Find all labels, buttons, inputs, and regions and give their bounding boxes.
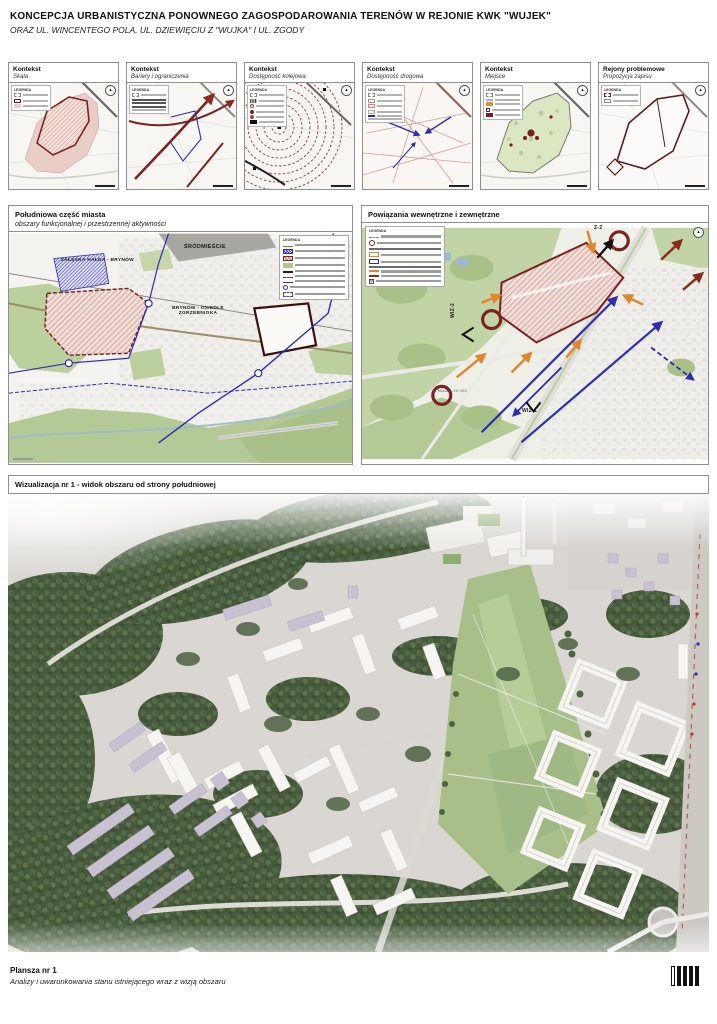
legend: LEGENDA [365,85,405,123]
card-map: LEGENDA ▴ [481,83,590,189]
panel-title: Południowa część miasta [15,210,346,219]
sheet-description: Analizy i uwarunkowania stanu istniejące… [10,977,707,986]
connections-map: LEGENDA M ▴ Z-2 WIZ-2 WIZ-1 skala 1:20 0… [362,223,708,464]
panel-header: Południowa część miasta obszary funkcjon… [9,206,352,232]
view-label-wiz1: WIZ-1 [522,408,537,414]
card-title: Kontekst [131,66,232,73]
legend-row [369,275,441,277]
legend-row [368,104,402,108]
card-header: Kontekst Dostępność kolejowa [245,63,354,83]
card-subtitle: Dostępność kolejowa [249,74,350,80]
scale-text: skala 1:20 000 [438,389,467,393]
legend-title: LEGENDA [132,88,166,92]
scale-text-skeleton [13,458,33,461]
context-card-miejsce: Kontekst Miejsce LEGENDA ▴ [480,62,591,190]
board-footer: Plansza nr 1 Analizy i uwarunkowania sta… [10,966,707,996]
district-label-srodmiescie: ŚRÓDMIEŚCIE [184,244,226,250]
view-label-wiz2: WIZ-2 [450,303,456,318]
legend-title: LEGENDA [604,88,638,92]
north-arrow-icon: ▴ [577,85,588,96]
card-header: Kontekst Dostępność drogowa [363,63,472,83]
legend: LEGENDA [601,85,641,106]
legend-row [283,285,345,290]
north-arrow-icon: ▴ [105,85,116,96]
legend-title: LEGENDA [250,88,284,92]
legend-row [486,102,520,106]
legend-title: LEGENDA [283,238,345,242]
district-label-zaleska: ZAŁĘSKA HAŁDA - BRYNÓW [61,258,134,263]
legend-row [486,99,520,101]
barcode-logo-icon [671,966,699,986]
legend-row [369,240,441,246]
panel-subtitle: obszary funkcjonalnej i przestrzennej ak… [15,221,346,228]
legend-row [283,256,345,261]
visualization-section: Wizualizacja nr 1 - widok obszaru od str… [8,475,709,952]
legend-row [283,263,345,268]
context-card-kolejowa: Kontekst Dostępność kolejowa LEGENDA ▴ [244,62,355,190]
legend-title: LEGENDA [14,88,48,92]
card-title: Kontekst [13,66,114,73]
visualization-render [8,494,709,952]
north-arrow-icon: ▴ [693,227,704,238]
legend-row [604,93,638,97]
north-arrow-icon: ▴ [695,85,706,96]
legend-row [604,99,638,103]
legend-row [283,244,345,247]
card-header: Kontekst Bariery i ograniczenia [127,63,236,83]
card-title: Kontekst [367,66,468,73]
district-label-line: ZGRZEBNIOKA [167,311,229,316]
card-title: Kontekst [485,66,586,73]
legend-row [368,115,402,117]
sheet-number: Plansza nr 1 [10,966,707,975]
card-map: LEGENDA ▴ [9,83,118,189]
legend-row [14,93,48,97]
legend-row [132,99,166,101]
board-header: KONCEPCJA URBANISTYCZNA PONOWNEGO ZAGOSP… [10,11,707,35]
legend-row [283,249,345,254]
scale-bar [567,185,587,188]
legend-row [250,104,284,108]
card-map: LEGENDA ▴ [245,83,354,189]
district-label-line: BRYNÓW - OSIEDLE [167,306,229,311]
north-arrow-icon: ▴ [223,85,234,96]
legend-row [132,102,166,104]
legend-row [369,235,441,238]
connections-panel: Powiązania wewnętrzne i zewnętrzne [361,205,709,465]
context-card-bariery: Kontekst Bariery i ograniczenia LEGENDA … [126,62,237,190]
scale-bar [95,185,115,188]
legend: LEGENDA [11,85,51,111]
legend-row [283,292,345,297]
marker-label-z2: Z-2 [594,225,602,231]
legend: LEGENDA [129,85,169,114]
card-header: Rejony problemowe Propozycja zapisu [599,63,708,83]
card-subtitle: Skala [13,74,114,80]
legend-title: LEGENDA [486,88,520,92]
legend-title: LEGENDA [368,88,402,92]
card-title: Kontekst [249,66,350,73]
north-arrow-icon: ▴ [341,85,352,96]
card-subtitle: Propozycja zapisu [603,74,704,80]
card-subtitle: Bariery i ograniczenia [131,74,232,80]
context-card-drogowa: Kontekst Dostępność drogowa LEGENDA ▴ [362,62,473,190]
legend-row [368,99,402,103]
legend-row [250,115,284,119]
card-title: Rejony problemowe [603,66,704,73]
legend-row [486,113,520,117]
card-subtitle: Miejsce [485,74,586,80]
legend-row [368,110,402,114]
legend-row [250,110,284,114]
urban-concept-board: KONCEPCJA URBANISTYCZNA PONOWNEGO ZAGOSP… [0,0,717,1024]
legend-row [14,104,48,108]
district-label-brynow: BRYNÓW - OSIEDLE ZGRZEBNIOKA [167,306,229,316]
legend-row [250,99,284,103]
legend-row [283,280,345,283]
legend: LEGENDA [279,235,349,300]
panel-title: Powiązania wewnętrzne i zewnętrzne [368,210,702,219]
context-card-skala: Kontekst Skala LEGENDA ▴ [8,62,119,190]
legend-row [283,270,345,273]
context-maps-row: Kontekst Skala LEGENDA ▴ [8,62,709,190]
legend-row [132,93,166,97]
scale-bar [685,185,705,188]
legend-row [368,93,402,97]
legend-row [369,252,441,257]
legend-row [250,120,284,124]
card-map: LEGENDA ▴ [599,83,708,189]
legend-row [132,106,166,108]
legend-row [283,275,345,278]
legend-title: LEGENDA [369,229,441,233]
legend-row [250,93,284,97]
card-map: LEGENDA ▴ [127,83,236,189]
analysis-maps-row: Południowa część miasta obszary funkcjon… [8,205,709,465]
legend-row [369,270,441,272]
legend: LEGENDA [247,85,287,127]
panel-header: Powiązania wewnętrzne i zewnętrzne [362,206,708,223]
board-subtitle: ORAZ UL. WINCENTEGO POLA, UL. DZIEWIĘCIU… [10,25,707,35]
south-city-map: LEGENDA ŚRÓDMIEŚCIE ZAŁĘSKA HAŁDA - BRYN… [9,232,352,465]
legend-row [132,109,166,111]
card-subtitle: Dostępność drogowa [367,74,468,80]
legend-row [486,93,520,97]
context-card-rejony: Rejony problemowe Propozycja zapisu LEGE… [598,62,709,190]
legend-row [14,99,48,103]
board-title: KONCEPCJA URBANISTYCZNA PONOWNEGO ZAGOSP… [10,11,707,22]
legend-row [369,259,441,264]
scale-bar [213,185,233,188]
legend-row [368,118,402,120]
scale-bar [331,185,351,188]
legend: LEGENDA M [365,226,445,287]
legend-row [486,108,520,112]
legend-row: M [369,279,441,284]
north-arrow-icon: ▴ [459,85,470,96]
card-header: Kontekst Skala [9,63,118,83]
visualization-title: Wizualizacja nr 1 - widok obszaru od str… [8,475,709,494]
south-city-panel: Południowa część miasta obszary funkcjon… [8,205,353,465]
card-map: LEGENDA ▴ [363,83,472,189]
legend: LEGENDA [483,85,523,120]
scale-bar [449,185,469,188]
aerial-render-graphic [8,494,709,952]
card-header: Kontekst Miejsce [481,63,590,83]
legend-row [369,248,441,250]
legend-row [369,266,441,268]
